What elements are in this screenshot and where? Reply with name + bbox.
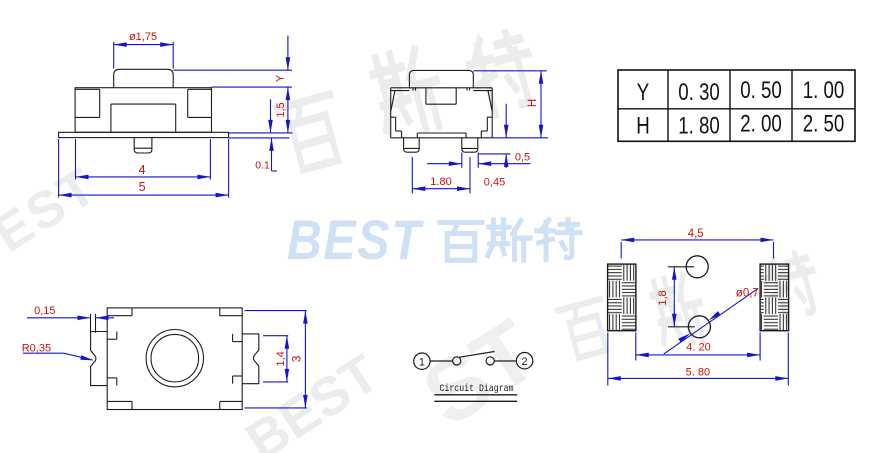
svg-text:1. 80: 1. 80 <box>678 112 720 139</box>
svg-text:4,5: 4,5 <box>688 228 704 240</box>
svg-text:3: 3 <box>289 355 303 362</box>
svg-text:2: 2 <box>522 356 528 368</box>
svg-text:2. 50: 2. 50 <box>803 110 845 137</box>
svg-text:0,15: 0,15 <box>34 305 55 317</box>
svg-text:0,5: 0,5 <box>515 151 530 163</box>
svg-text:4: 4 <box>139 163 146 177</box>
svg-text:0,45: 0,45 <box>484 176 505 188</box>
svg-text:0. 50: 0. 50 <box>740 77 782 104</box>
svg-text:1,4: 1,4 <box>275 351 287 366</box>
svg-text:BEST: BEST <box>287 210 424 272</box>
svg-text:5. 80: 5. 80 <box>686 367 710 379</box>
svg-text:ø0,7: ø0,7 <box>736 288 759 300</box>
svg-text:1.80: 1.80 <box>430 176 451 188</box>
svg-text:0. 30: 0. 30 <box>678 79 720 106</box>
svg-text:1. 00: 1. 00 <box>803 77 845 104</box>
svg-text:R0,35: R0,35 <box>22 342 51 354</box>
svg-text:Y: Y <box>637 79 649 106</box>
svg-text:4. 20: 4. 20 <box>686 342 710 354</box>
svg-text:0.1: 0.1 <box>255 159 270 171</box>
svg-text:Circuit Diagram: Circuit Diagram <box>440 383 514 395</box>
svg-text:5: 5 <box>139 180 146 194</box>
svg-text:Y: Y <box>275 74 287 82</box>
svg-text:1,5: 1,5 <box>275 102 287 117</box>
svg-text:ø1,75: ø1,75 <box>129 31 157 43</box>
svg-text:1,8: 1,8 <box>657 290 669 305</box>
svg-text:2. 00: 2. 00 <box>740 110 782 137</box>
svg-text:H: H <box>527 99 539 107</box>
svg-text:H: H <box>636 112 650 139</box>
svg-text:1: 1 <box>419 356 425 368</box>
